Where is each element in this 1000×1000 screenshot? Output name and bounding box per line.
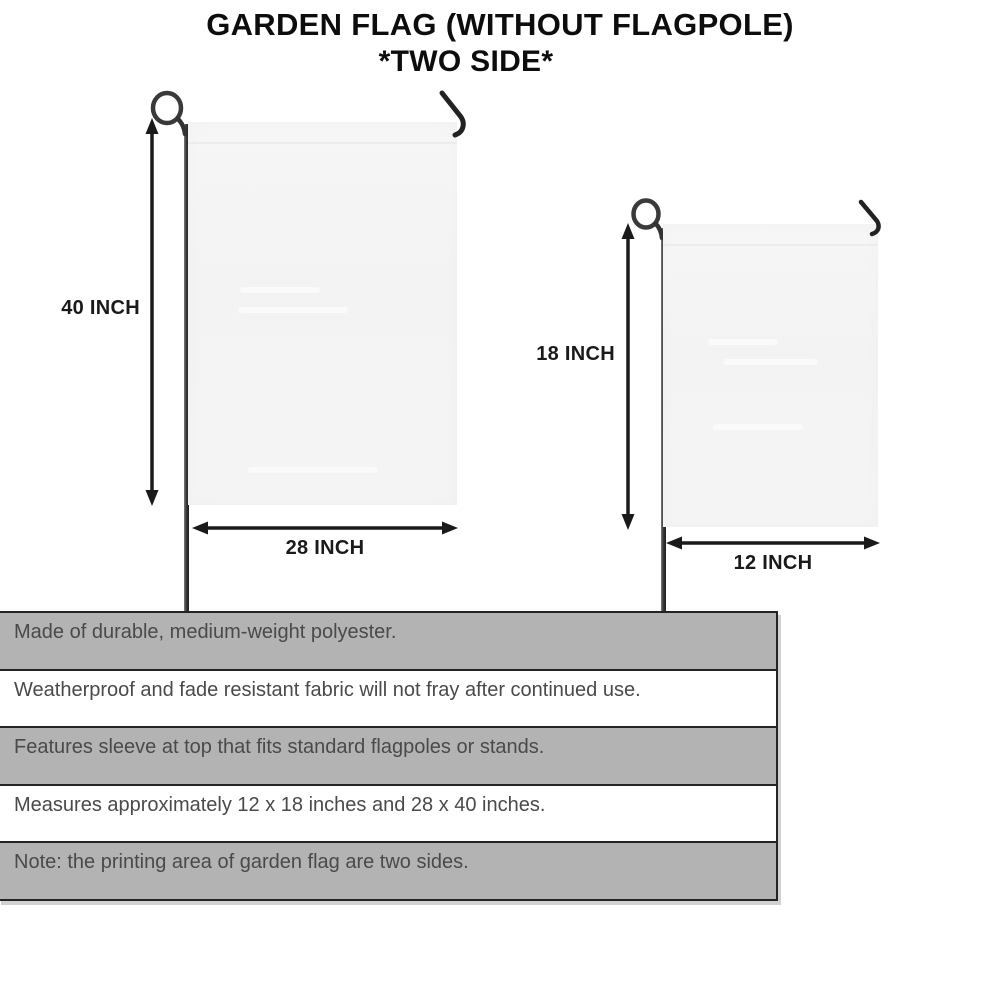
- spec-table: Made of durable, medium-weight polyester…: [0, 611, 778, 901]
- spec-row-measurements: Measures approximately 12 x 18 inches an…: [0, 786, 776, 844]
- large-flag-sleeve-seam: [188, 142, 457, 144]
- large-flag-width-arrow: [192, 520, 458, 536]
- spec-row-material: Made of durable, medium-weight polyester…: [0, 613, 776, 671]
- large-flag-height-arrow: [144, 118, 160, 506]
- large-flag-height-label: 40 INCH: [30, 297, 140, 320]
- small-flag: [663, 224, 878, 527]
- small-flag-sleeve-seam: [663, 244, 878, 246]
- small-flag-width-label: 12 INCH: [666, 552, 880, 575]
- large-flag-width-label: 28 INCH: [192, 537, 458, 560]
- small-flag-hook-icon: [858, 199, 886, 237]
- flag-wrinkle: [723, 359, 818, 365]
- large-flag-hook-icon: [438, 90, 468, 142]
- page-title: GARDEN FLAG (WITHOUT FLAGPOLE) *TWO SIDE…: [0, 6, 1000, 80]
- spec-row-note: Note: the printing area of garden flag a…: [0, 843, 776, 899]
- spec-row-weatherproof: Weatherproof and fade resistant fabric w…: [0, 671, 776, 729]
- flag-wrinkle: [240, 287, 320, 293]
- product-infographic: GARDEN FLAG (WITHOUT FLAGPOLE) *TWO SIDE…: [0, 0, 1000, 1000]
- small-flag-height-arrow: [620, 223, 636, 530]
- small-flag-height-label: 18 INCH: [505, 343, 615, 366]
- flag-wrinkle: [713, 424, 803, 430]
- spec-row-sleeve: Features sleeve at top that fits standar…: [0, 728, 776, 786]
- small-flag-width-arrow: [666, 535, 880, 551]
- flag-wrinkle: [248, 467, 378, 473]
- flag-wrinkle: [238, 307, 348, 313]
- large-flag: [188, 122, 457, 505]
- flag-wrinkle: [708, 339, 778, 345]
- title-line-2: *TWO SIDE*: [0, 44, 966, 80]
- title-line-1: GARDEN FLAG (WITHOUT FLAGPOLE): [0, 6, 1000, 44]
